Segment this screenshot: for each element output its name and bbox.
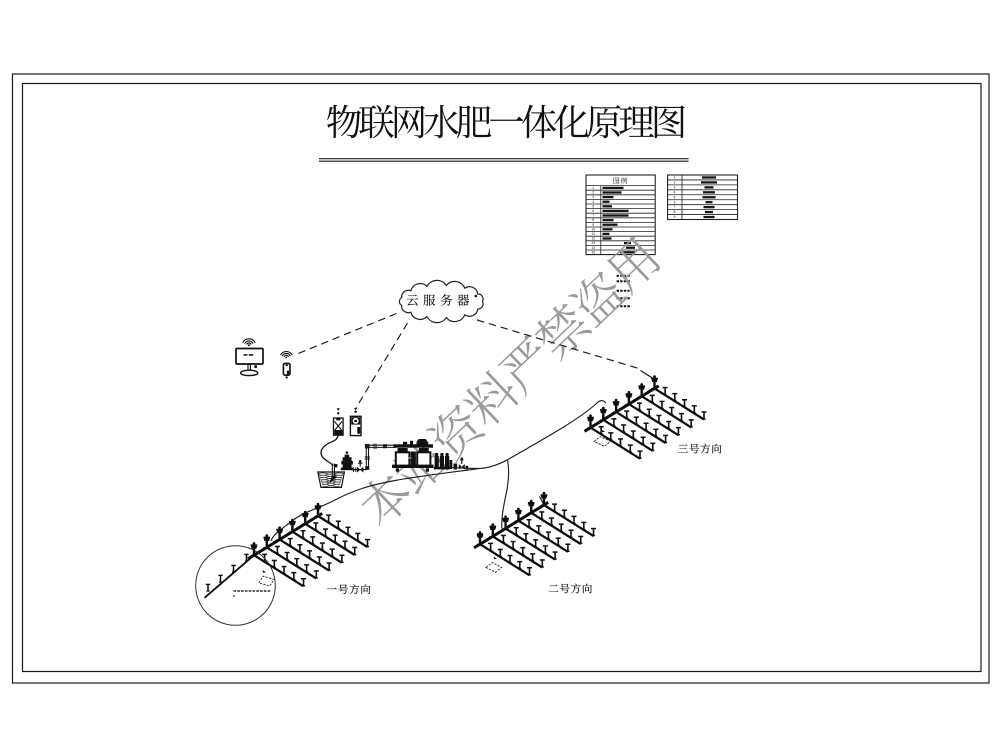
svg-text:8: 8 <box>592 218 594 222</box>
svg-text:5: 5 <box>674 195 676 199</box>
svg-text:10: 10 <box>592 227 596 231</box>
svg-text:12: 12 <box>592 237 596 241</box>
svg-text:13: 13 <box>592 241 596 245</box>
svg-text:1: 1 <box>592 186 594 190</box>
svg-text:3: 3 <box>674 186 676 190</box>
svg-text:9: 9 <box>592 223 594 227</box>
svg-text:15: 15 <box>592 250 596 254</box>
svg-text:6: 6 <box>592 209 594 213</box>
svg-text:4: 4 <box>592 200 594 204</box>
svg-text:8: 8 <box>674 210 676 214</box>
svg-text:2: 2 <box>674 181 676 185</box>
svg-text:9: 9 <box>674 215 676 219</box>
svg-text:6: 6 <box>674 200 676 204</box>
svg-text:5: 5 <box>592 204 594 208</box>
svg-text:14: 14 <box>592 246 596 250</box>
svg-text:7: 7 <box>592 214 594 218</box>
svg-text:3: 3 <box>592 195 594 199</box>
svg-text:1: 1 <box>674 176 676 180</box>
svg-text:11: 11 <box>592 232 596 236</box>
svg-text:4: 4 <box>674 190 676 194</box>
svg-text:7: 7 <box>674 205 676 209</box>
svg-text:2: 2 <box>592 191 594 195</box>
